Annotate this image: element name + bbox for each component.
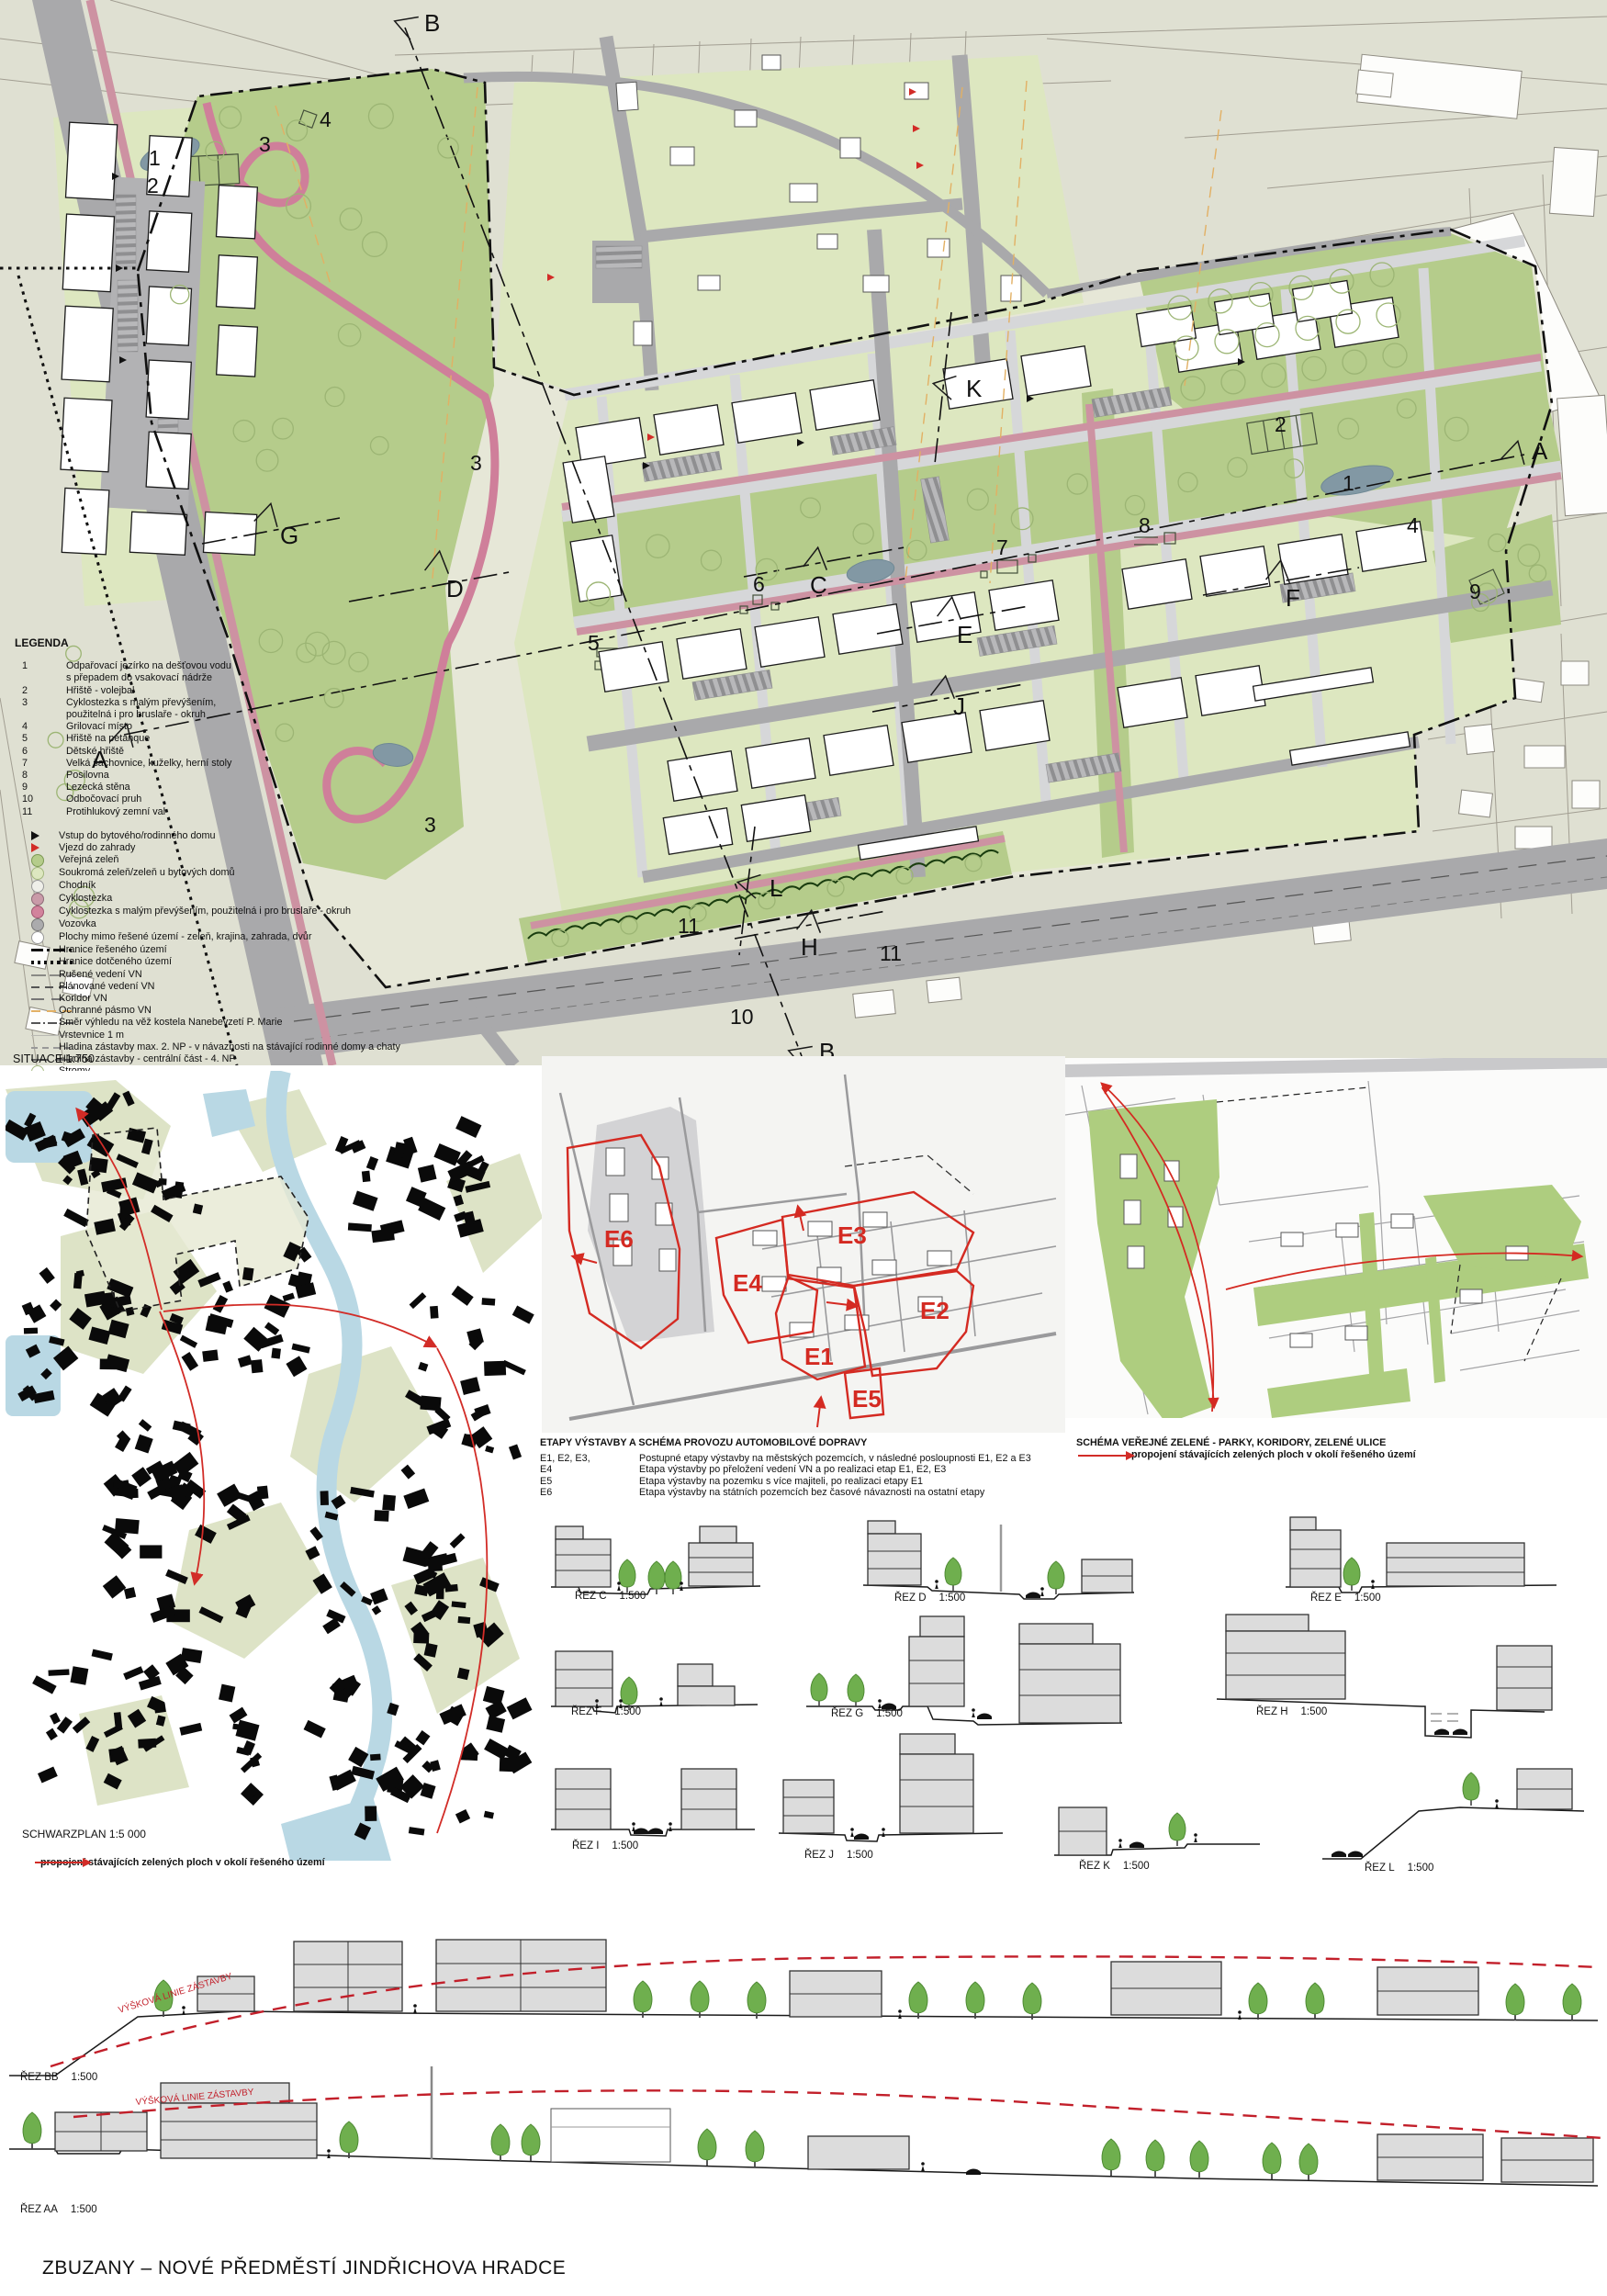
plan-marker-L: L [770, 874, 782, 902]
section-h-label: ŘEZ H1:500 [1256, 1706, 1327, 1717]
section-i-label: ŘEZ I1:500 [572, 1840, 638, 1851]
svg-text:E4: E4 [733, 1269, 762, 1297]
house-entry-icon [31, 831, 39, 840]
section-j-drawing [779, 1734, 1003, 1841]
section-f-drawing [551, 1651, 758, 1713]
etapy-text-block: ETAPY VÝSTAVBY A SCHÉMA PROVOZU AUTOMOBI… [540, 1437, 1068, 1499]
svg-text:E5: E5 [852, 1385, 882, 1412]
svg-text:3: 3 [259, 132, 271, 156]
plan-marker-K: K [966, 375, 983, 402]
etapy-title: ETAPY VÝSTAVBY A SCHÉMA PROVOZU AUTOMOBI… [540, 1437, 1068, 1449]
sidewalk-icon [31, 880, 44, 893]
svg-text:E2: E2 [920, 1297, 950, 1324]
svg-text:1: 1 [149, 146, 161, 170]
section-l-label: ŘEZ L1:500 [1365, 1863, 1433, 1874]
section-bb-label: ŘEZ BB1:500 [20, 2072, 97, 2083]
plan-marker-G: G [280, 522, 298, 549]
plan-marker-H: H [801, 933, 818, 961]
svg-text:2: 2 [147, 174, 159, 197]
green-scheme-text-block: SCHÉMA VEŘEJNÉ ZELENÉ - PARKY, KORIDORY,… [1076, 1437, 1600, 1461]
poster-title: ZBUZANY – NOVÉ PŘEDMĚSTÍ JINDŘICHOVA HRA… [42, 2257, 566, 2279]
section-f-label: ŘEZ F1:500 [571, 1706, 641, 1717]
svg-text:11: 11 [678, 914, 700, 938]
cycle-loop-icon [31, 906, 44, 918]
legend-panel: LEGENDA 1Odpařovací jezírko na dešťovou … [15, 637, 501, 1078]
section-k-drawing [1054, 1807, 1260, 1855]
plan-marker-D: D [446, 575, 464, 602]
plan-marker-F: F [1286, 584, 1300, 612]
poster-canvas: A A B B C D E F G H J K L 1 2 3 3 3 4 4 … [0, 0, 1607, 2296]
situace-label: SITUACE 1:750 [13, 1052, 95, 1065]
section-aa-label: ŘEZ AA1:500 [20, 2204, 97, 2215]
red-arrow-icon [33, 1856, 92, 1869]
section-c-label: ŘEZ C1:500 [575, 1591, 646, 1602]
plan-marker-A2: A [1532, 437, 1548, 465]
plan-marker-J: J [953, 692, 965, 720]
svg-text:E3: E3 [837, 1221, 867, 1249]
public-green-icon [31, 854, 44, 867]
plan-marker-C: C [810, 571, 827, 599]
private-green-icon [31, 867, 44, 880]
section-d-drawing [863, 1521, 1134, 1599]
section-d-label: ŘEZ D1:500 [894, 1593, 965, 1604]
section-g-label: ŘEZ G1:500 [831, 1708, 903, 1719]
green-scheme-title: SCHÉMA VEŘEJNÉ ZELENÉ - PARKY, KORIDORY,… [1076, 1437, 1600, 1449]
section-aa-drawing: VÝŠKOVÁ LINIE ZÁSTAVBY [9, 2066, 1602, 2186]
plan-marker-E: E [957, 621, 972, 648]
svg-text:8: 8 [1139, 513, 1151, 537]
section-k-label: ŘEZ K1:500 [1079, 1861, 1150, 1872]
svg-text:2: 2 [1275, 412, 1287, 436]
long-sections: VÝŠKOVÁ LINIE ZÁSTAVBY VÝŠKOVÁ LINIE ZÁS… [0, 1929, 1607, 2241]
section-e-drawing [1286, 1517, 1556, 1593]
svg-text:6: 6 [753, 572, 765, 596]
section-h-drawing [1217, 1615, 1552, 1738]
section-i-drawing [551, 1769, 755, 1836]
red-arrow-icon [1076, 1449, 1135, 1462]
svg-text:E1: E1 [804, 1343, 834, 1370]
schwarzplan-map [6, 1071, 543, 1861]
section-l-drawing [1322, 1769, 1584, 1859]
svg-text:10: 10 [730, 1005, 754, 1029]
svg-text:4: 4 [1407, 513, 1419, 537]
green-scheme-diagram [1065, 1058, 1607, 1418]
section-e-label: ŘEZ E1:500 [1310, 1593, 1381, 1604]
svg-text:9: 9 [1469, 580, 1481, 603]
svg-text:11: 11 [880, 941, 902, 965]
cross-sections [542, 1506, 1607, 1901]
svg-text:3: 3 [470, 451, 482, 475]
etapy-diagram: E6 E4 E3 E2 E1 E5 [542, 1056, 1065, 1433]
roadway-icon [31, 918, 44, 931]
green-scheme-note: propojení stávajících zelených ploch v o… [1131, 1449, 1416, 1461]
cycleway-icon [31, 893, 44, 906]
plan-marker-B: B [424, 9, 440, 37]
schwarzplan-label: SCHWARZPLAN 1:5 000 [22, 1828, 146, 1840]
legend-title: LEGENDA [15, 637, 501, 649]
svg-text:1: 1 [1343, 471, 1354, 495]
svg-text:5: 5 [588, 631, 600, 655]
outside-area-icon [31, 931, 44, 944]
schwarzplan-note: propojení stávajících zelených ploch v o… [33, 1857, 325, 1868]
svg-text:E6: E6 [604, 1225, 634, 1253]
section-bb-drawing: VÝŠKOVÁ LINIE ZÁSTAVBY [9, 1940, 1598, 2076]
section-c-drawing [551, 1526, 760, 1594]
garden-entry-icon [31, 843, 39, 852]
svg-text:7: 7 [996, 535, 1008, 559]
section-j-label: ŘEZ J1:500 [804, 1850, 873, 1861]
svg-text:4: 4 [320, 107, 332, 131]
